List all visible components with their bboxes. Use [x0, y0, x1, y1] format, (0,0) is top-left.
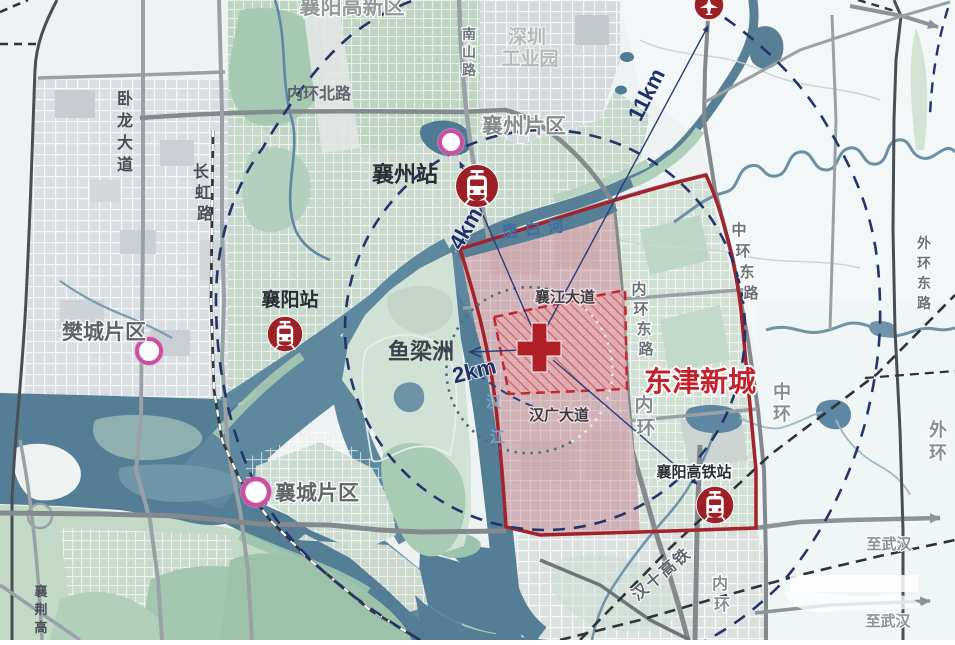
svg-text:环: 环 — [929, 443, 947, 463]
svg-text:江: 江 — [490, 428, 505, 446]
svg-text:襄州片区: 襄州片区 — [481, 114, 566, 138]
svg-text:路: 路 — [638, 340, 654, 358]
svg-text:襄: 襄 — [33, 584, 48, 599]
svg-text:襄阳高新区: 襄阳高新区 — [299, 0, 405, 19]
svg-text:环: 环 — [636, 418, 655, 439]
svg-text:虹: 虹 — [195, 183, 211, 202]
svg-text:东: 东 — [739, 263, 754, 281]
svg-text:龙: 龙 — [116, 111, 133, 130]
svg-text:至武汉: 至武汉 — [866, 535, 912, 553]
svg-text:东: 东 — [917, 275, 931, 291]
svg-text:环: 环 — [633, 301, 648, 318]
svg-text:内环北路: 内环北路 — [287, 84, 352, 103]
svg-text:长: 长 — [193, 162, 210, 181]
svg-text:中: 中 — [731, 221, 746, 239]
svg-text:山: 山 — [462, 44, 476, 60]
svg-text:大: 大 — [117, 133, 133, 152]
svg-text:南: 南 — [462, 26, 476, 42]
svg-text:至武汉: 至武汉 — [865, 612, 911, 630]
svg-text:襄阳站: 襄阳站 — [260, 288, 318, 311]
svg-text:襄阳高铁站: 襄阳高铁站 — [655, 463, 731, 481]
svg-text:外: 外 — [929, 419, 947, 440]
svg-text:环: 环 — [773, 404, 791, 424]
svg-text:东津新城: 东津新城 — [644, 365, 756, 397]
svg-text:襄州站: 襄州站 — [371, 162, 438, 187]
svg-text:卧: 卧 — [117, 90, 133, 108]
svg-text:环: 环 — [735, 243, 750, 260]
svg-text:襄江大道: 襄江大道 — [534, 288, 595, 306]
svg-text:樊城片区: 樊城片区 — [62, 320, 146, 344]
svg-text:汉广大道: 汉广大道 — [529, 406, 589, 424]
svg-text:路: 路 — [917, 295, 932, 311]
svg-text:中: 中 — [773, 381, 791, 402]
svg-text:襄城片区: 襄城片区 — [274, 481, 359, 505]
svg-text:道: 道 — [117, 155, 133, 174]
svg-text:工业园: 工业园 — [501, 48, 558, 70]
svg-text:路: 路 — [197, 204, 214, 223]
svg-text:内: 内 — [631, 280, 646, 298]
svg-text:环: 环 — [714, 596, 730, 614]
svg-text:内: 内 — [712, 574, 728, 593]
svg-text:外: 外 — [917, 235, 931, 251]
svg-text:路: 路 — [462, 62, 477, 78]
svg-text:深圳: 深圳 — [508, 25, 546, 48]
svg-text:荆: 荆 — [34, 602, 47, 617]
svg-text:环: 环 — [917, 255, 931, 271]
svg-text:高: 高 — [34, 620, 47, 635]
svg-text:路: 路 — [743, 284, 759, 302]
svg-text:内: 内 — [634, 393, 653, 416]
svg-text:汉: 汉 — [486, 393, 502, 411]
svg-text:东: 东 — [636, 320, 651, 338]
svg-text:鱼梁洲: 鱼梁洲 — [388, 339, 454, 364]
